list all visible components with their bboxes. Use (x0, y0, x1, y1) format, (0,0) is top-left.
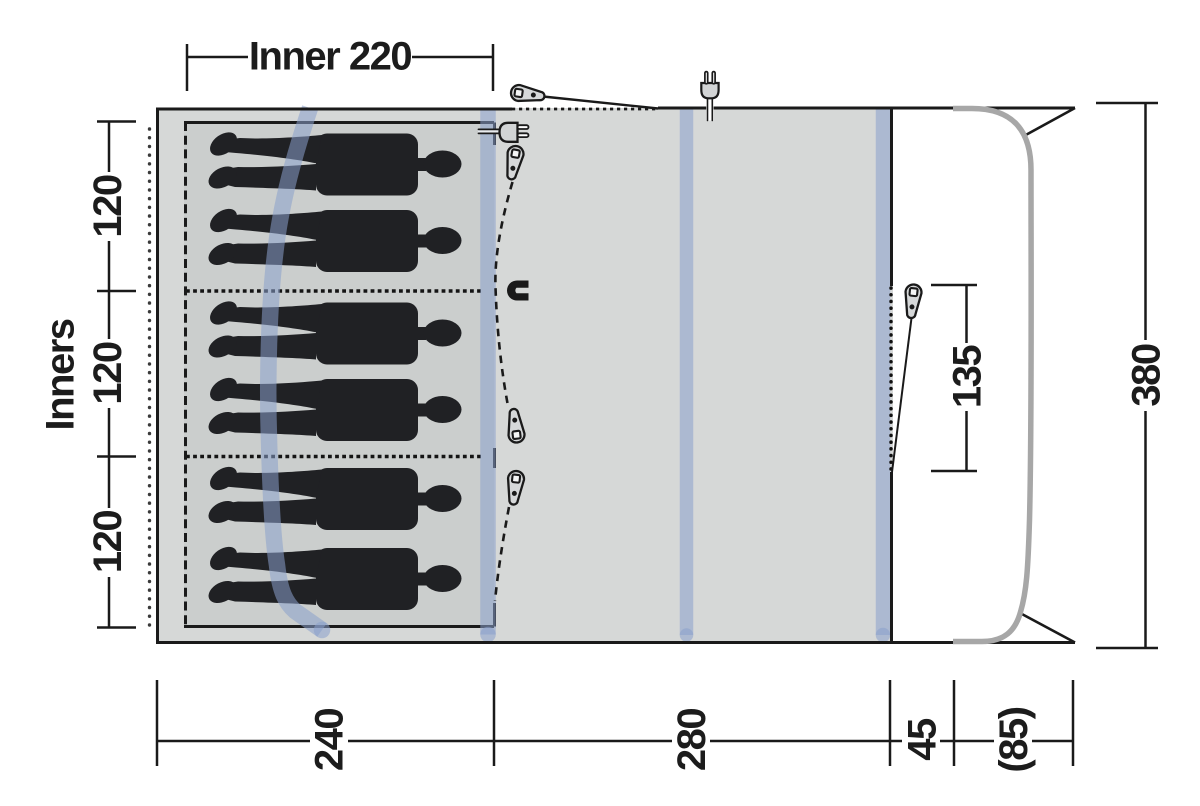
svg-text:380: 380 (1125, 344, 1169, 406)
svg-text:120: 120 (86, 175, 130, 237)
svg-text:120: 120 (86, 511, 130, 573)
svg-text:Inners: Inners (39, 319, 83, 430)
svg-text:Inner 220: Inner 220 (249, 35, 411, 79)
svg-text:120: 120 (86, 342, 130, 404)
svg-text:135: 135 (946, 345, 990, 408)
svg-text:280: 280 (670, 709, 714, 771)
svg-text:45: 45 (901, 718, 945, 761)
svg-text:(85): (85) (992, 707, 1036, 772)
svg-text:240: 240 (308, 709, 352, 771)
